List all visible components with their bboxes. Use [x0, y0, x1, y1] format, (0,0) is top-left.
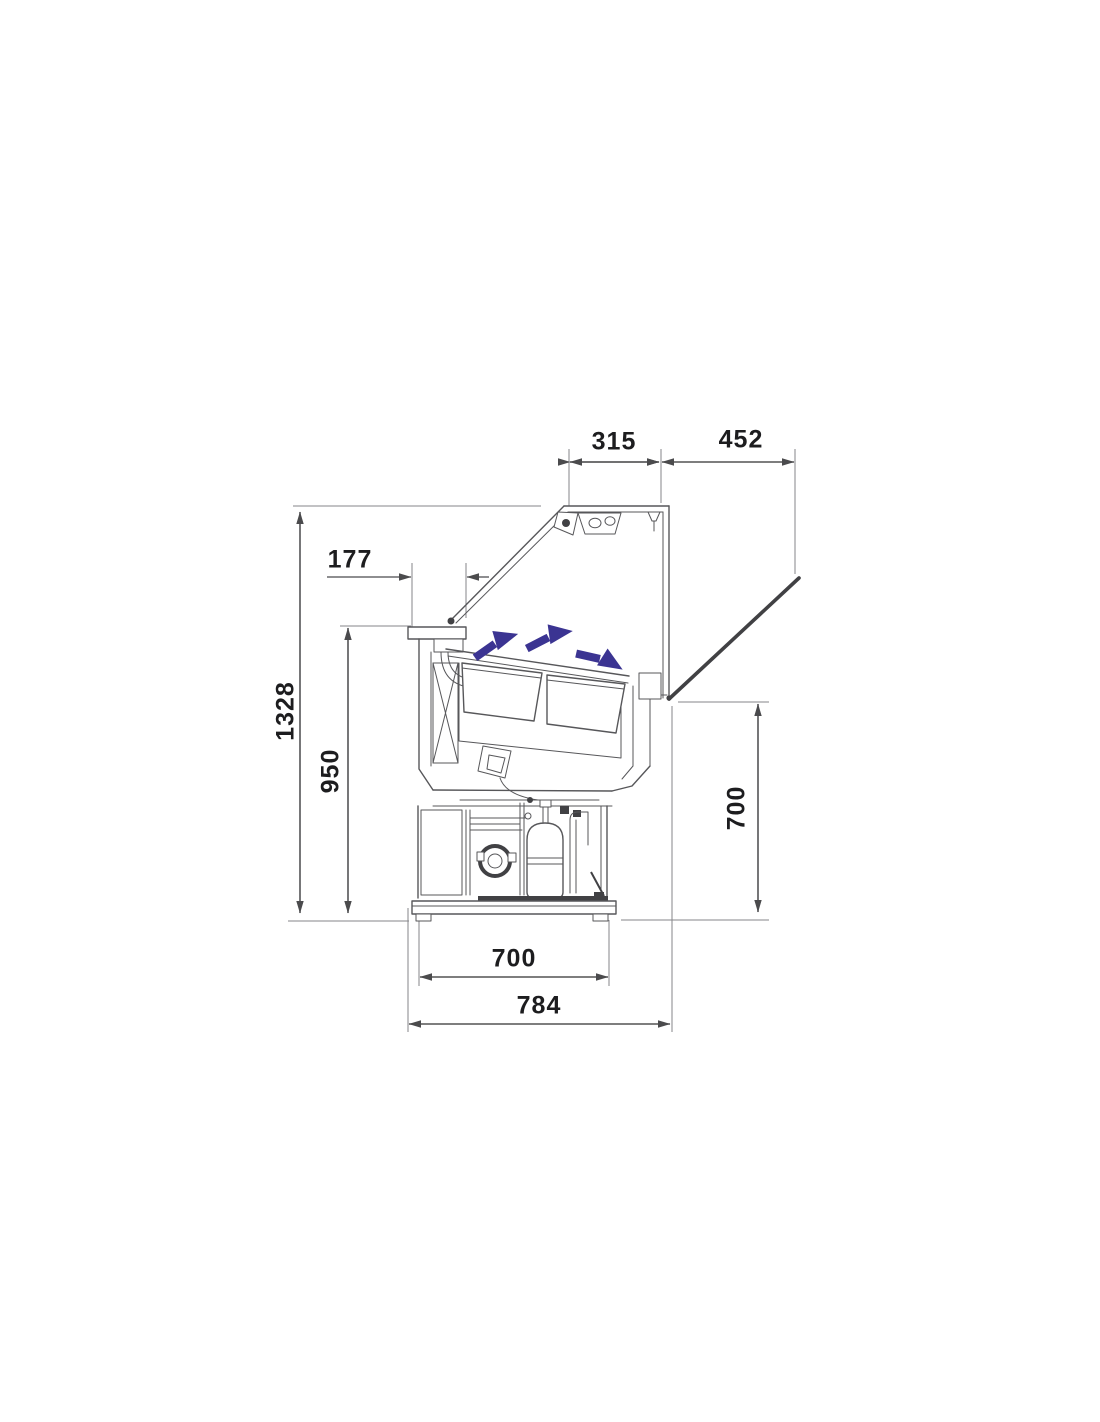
display-well [433, 649, 629, 800]
foot [593, 914, 608, 921]
dimension-label-front-edge-height: 700 [723, 786, 752, 831]
open-front-glass [656, 578, 799, 701]
extension-lines [288, 449, 795, 1032]
foot [416, 914, 431, 921]
food-pan [462, 663, 542, 721]
hinge-pin [562, 519, 570, 527]
food-pan [547, 675, 625, 733]
dimension-label-canopy-width: 177 [328, 546, 373, 575]
condenser-coil [421, 810, 462, 895]
airflow-arrow-icon [524, 621, 574, 648]
dimension-label-base-width: 700 [492, 945, 537, 974]
unit-rail [478, 896, 608, 901]
dimension-drawing-canvas: 315 452 177 1328 950 700 700 784 [0, 0, 1100, 1422]
airflow-arrow-icon [469, 624, 521, 657]
dimension-label-overall-depth: 784 [517, 992, 562, 1021]
dimension-label-overall-height: 1328 [272, 681, 301, 741]
base-plate [412, 901, 616, 914]
lid-pivot-pin [448, 618, 455, 625]
compressor [527, 823, 563, 898]
technical-drawing [0, 0, 1100, 1422]
display-case-section [408, 506, 799, 921]
dimension-label-top-lid-width: 315 [592, 428, 637, 457]
dimension-label-open-glass-span: 452 [719, 426, 764, 455]
dimension-label-body-height: 950 [317, 749, 346, 794]
dimension-lines [300, 462, 794, 1024]
machine-compartment [412, 797, 616, 921]
